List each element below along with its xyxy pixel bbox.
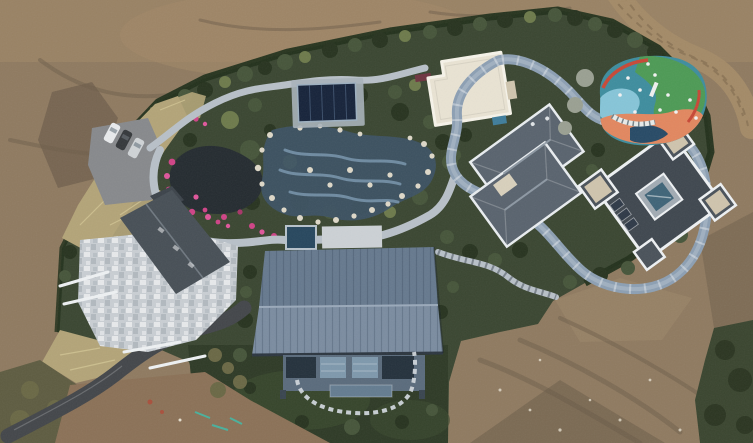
photo-grain-overlay (0, 0, 753, 443)
aerial-photo (0, 0, 753, 443)
aerial-photo-canvas (0, 0, 753, 443)
